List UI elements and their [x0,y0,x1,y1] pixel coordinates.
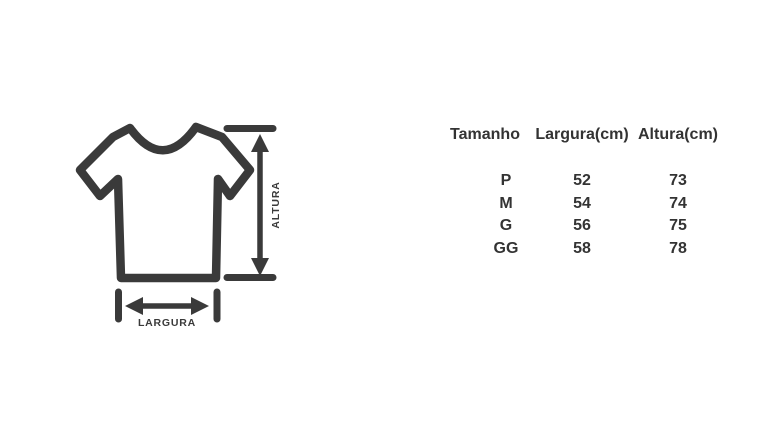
t-shirt-outline-icon [80,127,250,278]
size-cell: M [465,193,547,216]
arrow-down-icon [251,258,269,276]
column-header-largura: Largura(cm) [526,126,638,144]
altura-cell: 74 [638,193,718,216]
column-header-tamanho: Tamanho [444,126,526,144]
table-row: G 56 75 [444,215,718,238]
width-label: LARGURA [138,317,196,329]
table-row: P 52 73 [444,170,718,193]
size-table: Tamanho Largura(cm) Altura(cm) P 52 73 M… [444,126,718,260]
table-row: GG 58 78 [444,238,718,261]
altura-cell: 73 [638,170,718,193]
size-cell: GG [465,238,547,261]
arrow-up-icon [251,134,269,152]
size-table-body: P 52 73 M 54 74 G 56 75 GG 58 78 [444,170,718,260]
width-dimension-arrow: LARGURA [119,292,218,329]
size-cell: P [465,170,547,193]
column-header-altura: Altura(cm) [638,126,718,144]
size-table-header: Tamanho Largura(cm) Altura(cm) [444,126,718,144]
arrow-left-icon [125,297,143,315]
arrow-right-icon [191,297,209,315]
altura-cell: 78 [638,238,718,261]
table-row: M 54 74 [444,193,718,216]
altura-cell: 75 [638,215,718,238]
tshirt-measurement-diagram: ALTURA LARGURA [55,95,305,340]
size-cell: G [465,215,547,238]
height-label: ALTURA [270,181,282,228]
size-guide-page: ALTURA LARGURA Tamanho Largura(cm) Altur… [0,0,758,429]
